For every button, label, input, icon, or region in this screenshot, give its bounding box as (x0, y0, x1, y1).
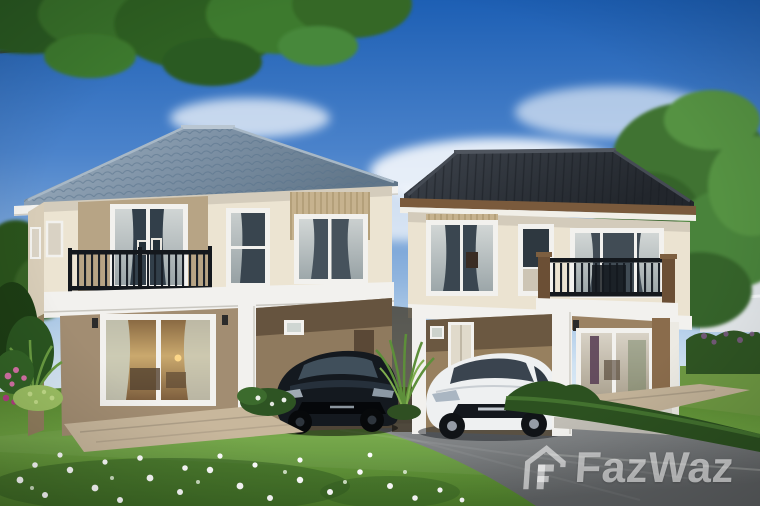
property-rendering-image: FazWaz (0, 0, 760, 506)
scene-illustration (0, 0, 760, 506)
vignette-overlay (0, 0, 760, 506)
